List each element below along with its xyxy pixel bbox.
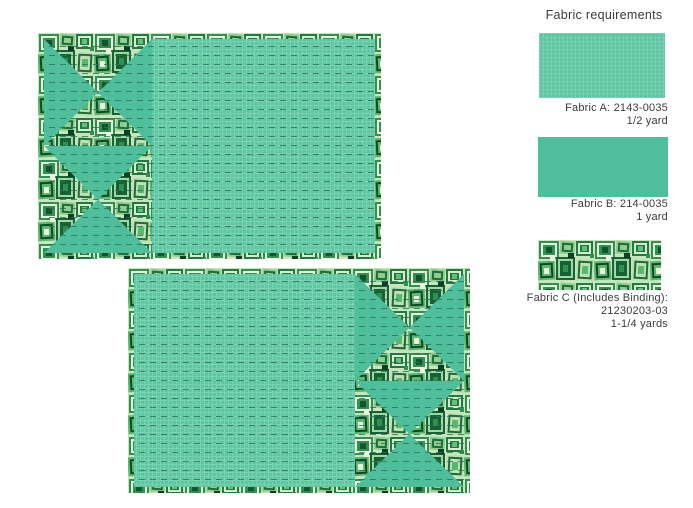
quilting-lines bbox=[44, 39, 375, 253]
fabric-requirements-title: Fabric requirements bbox=[531, 8, 677, 22]
placemat-diagram-top bbox=[38, 33, 381, 259]
fabric-b-name: Fabric B: 214-0035 bbox=[480, 198, 668, 211]
fabric-a-swatch bbox=[539, 33, 665, 98]
fabric-c-name: Fabric C (Includes Binding): bbox=[480, 292, 668, 305]
fabric-c-label: Fabric C (Includes Binding): 21230203-03… bbox=[480, 292, 668, 331]
fabric-c-yardage: 1-1/4 yards bbox=[480, 318, 668, 331]
fabric-a-yardage: 1/2 yard bbox=[480, 115, 668, 128]
pattern-sheet-page: Fabric requirements Fabric A: 2143-0035 … bbox=[0, 0, 693, 508]
fabric-b-swatch bbox=[538, 137, 668, 197]
fabric-c-sku: 21230203-03 bbox=[480, 305, 668, 318]
placemat-diagram-bottom bbox=[128, 268, 470, 493]
fabric-a-label: Fabric A: 2143-0035 1/2 yard bbox=[480, 102, 668, 128]
fabric-a-name: Fabric A: 2143-0035 bbox=[480, 102, 668, 115]
fabric-c-swatch bbox=[538, 240, 661, 290]
fabric-b-label: Fabric B: 214-0035 1 yard bbox=[480, 198, 668, 224]
fabric-b-yardage: 1 yard bbox=[480, 211, 668, 224]
quilting-lines bbox=[134, 274, 464, 487]
